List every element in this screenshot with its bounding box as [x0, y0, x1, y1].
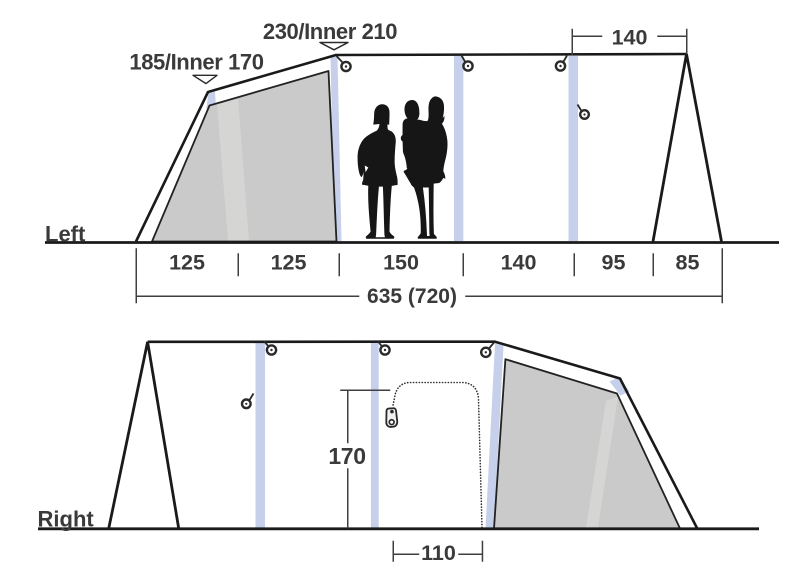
svg-text:Right: Right: [38, 507, 95, 532]
svg-text:95: 95: [602, 251, 626, 275]
svg-text:150: 150: [383, 251, 419, 275]
svg-text:170: 170: [328, 443, 365, 469]
svg-text:230/Inner 210: 230/Inner 210: [263, 19, 397, 44]
svg-text:140: 140: [501, 251, 537, 275]
svg-text:140: 140: [612, 26, 648, 50]
svg-text:635 (720): 635 (720): [367, 285, 457, 308]
svg-text:110: 110: [421, 541, 456, 565]
svg-text:125: 125: [271, 251, 307, 275]
svg-text:Left: Left: [45, 222, 86, 247]
svg-text:85: 85: [676, 251, 700, 275]
svg-text:125: 125: [169, 251, 205, 275]
svg-text:185/Inner 170: 185/Inner 170: [129, 50, 263, 75]
